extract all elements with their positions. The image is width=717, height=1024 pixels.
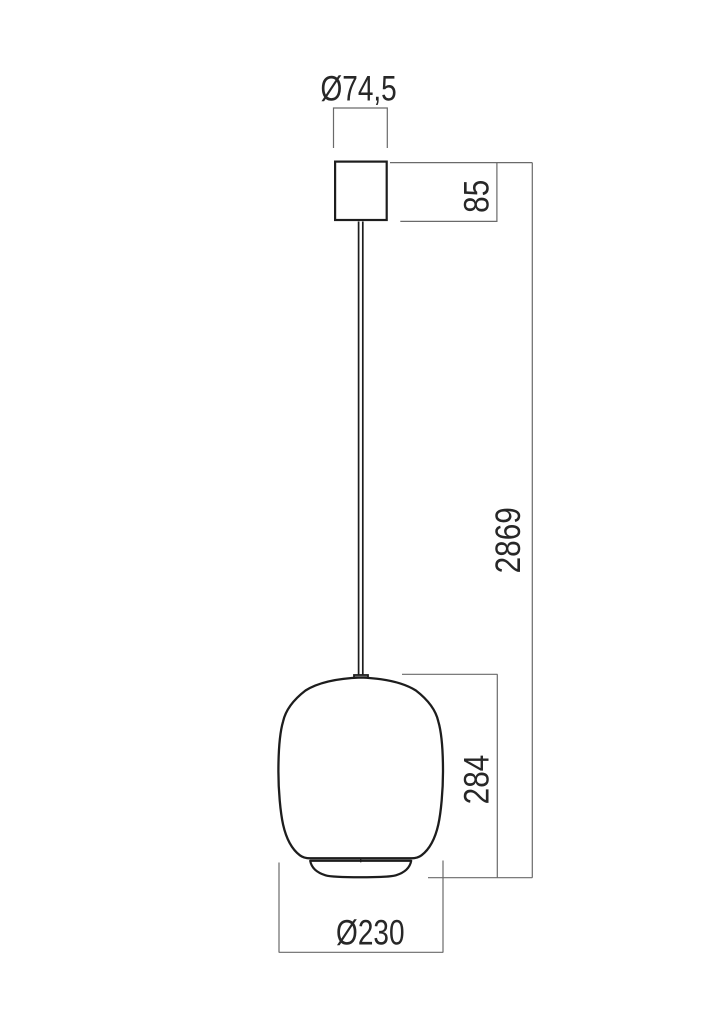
svg-text:284: 284: [457, 755, 496, 805]
svg-text:2869: 2869: [489, 507, 528, 573]
svg-text:Ø74,5: Ø74,5: [320, 69, 396, 109]
svg-text:85: 85: [457, 180, 496, 213]
svg-text:Ø230: Ø230: [336, 912, 404, 952]
